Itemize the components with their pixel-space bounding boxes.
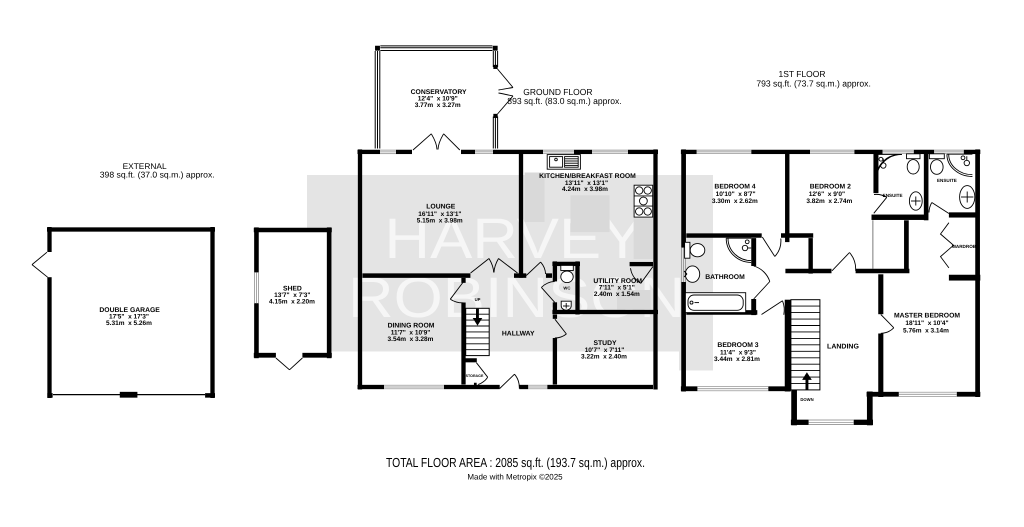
svg-text:STORAGE: STORAGE	[466, 374, 484, 378]
svg-text:793 sq.ft. (73.7 sq.m.) approx: 793 sq.ft. (73.7 sq.m.) approx.	[756, 78, 871, 88]
svg-text:3.22m x 2.40m: 3.22m x 2.40m	[581, 354, 627, 361]
svg-text:LOUNGE: LOUNGE	[426, 204, 456, 211]
svg-text:893 sq.ft. (83.0 sq.m.) approx: 893 sq.ft. (83.0 sq.m.) approx.	[507, 96, 621, 106]
svg-text:3.77m x 3.27m: 3.77m x 3.27m	[415, 102, 461, 109]
svg-text:BATHROOM: BATHROOM	[705, 274, 745, 281]
svg-text:BEDROOM 3: BEDROOM 3	[717, 342, 758, 349]
svg-text:UP: UP	[475, 297, 481, 302]
svg-text:5.31m x 5.26m: 5.31m x 5.26m	[106, 320, 152, 327]
svg-text:5.76m x 3.14m: 5.76m x 3.14m	[903, 327, 949, 334]
svg-text:ENSUITE: ENSUITE	[883, 193, 903, 198]
svg-text:HALLWAY: HALLWAY	[502, 330, 535, 337]
svg-text:5.15m x 3.98m: 5.15m x 3.98m	[417, 217, 463, 224]
svg-text:398 sq.ft. (37.0 sq.m.) approx: 398 sq.ft. (37.0 sq.m.) approx.	[100, 169, 215, 179]
svg-text:3.44m x 2.81m: 3.44m x 2.81m	[714, 356, 760, 363]
svg-text:BEDROOM 2: BEDROOM 2	[810, 184, 851, 191]
svg-text:4.24m x 3.98m: 4.24m x 3.98m	[562, 186, 608, 193]
svg-text:BEDROOM 4: BEDROOM 4	[714, 184, 755, 191]
svg-text:18'11" x 10'4": 18'11" x 10'4"	[905, 320, 948, 327]
svg-text:ENSUITE: ENSUITE	[937, 178, 957, 183]
svg-text:LANDING: LANDING	[827, 343, 859, 350]
svg-text:3.54m x 3.28m: 3.54m x 3.28m	[388, 336, 434, 343]
svg-text:3.30m x 2.62m: 3.30m x 2.62m	[712, 198, 758, 205]
svg-text:MASTER BEDROOM: MASTER BEDROOM	[894, 313, 960, 320]
svg-text:DOWN: DOWN	[800, 397, 813, 402]
svg-text:3.82m x 2.74m: 3.82m x 2.74m	[806, 198, 852, 205]
svg-text:TOTAL FLOOR AREA : 2085 sq.ft.: TOTAL FLOOR AREA : 2085 sq.ft. (193.7 sq…	[386, 455, 645, 470]
svg-text:Made with Metropix ©2025: Made with Metropix ©2025	[467, 472, 563, 481]
svg-text:4.15m x 2.20m: 4.15m x 2.20m	[269, 299, 315, 306]
svg-text:WC: WC	[563, 285, 570, 290]
svg-text:2.40m x 1.54m: 2.40m x 1.54m	[594, 291, 640, 298]
svg-text:WARDROBE: WARDROBE	[952, 244, 979, 249]
